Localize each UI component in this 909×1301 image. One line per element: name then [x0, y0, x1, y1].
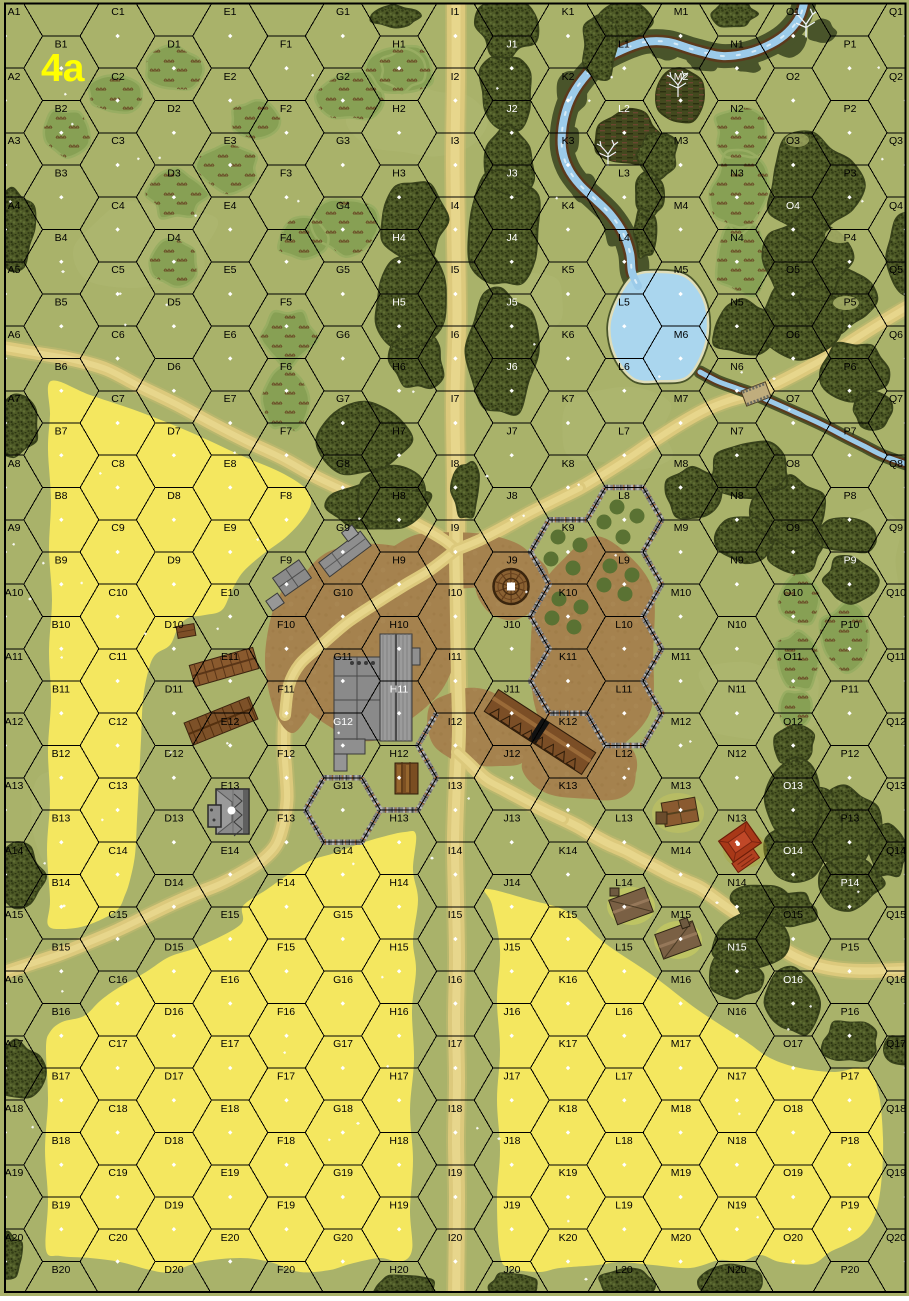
svg-text:Q10: Q10 [886, 587, 906, 599]
svg-text:I12: I12 [448, 716, 463, 728]
svg-text:A10: A10 [5, 587, 24, 599]
svg-text:H4: H4 [392, 232, 406, 244]
svg-text:A3: A3 [8, 135, 21, 147]
svg-text:A16: A16 [5, 974, 24, 986]
svg-text:H12: H12 [389, 748, 408, 760]
svg-text:E7: E7 [224, 393, 237, 405]
svg-text:K20: K20 [559, 1232, 578, 1244]
svg-text:B9: B9 [55, 555, 68, 567]
svg-text:N9: N9 [730, 555, 744, 567]
svg-text:Q1: Q1 [889, 6, 903, 18]
svg-text:J16: J16 [504, 1006, 521, 1018]
svg-text:N19: N19 [727, 1200, 746, 1212]
svg-text:A7: A7 [8, 393, 21, 405]
svg-text:F13: F13 [277, 813, 295, 825]
svg-text:P8: P8 [844, 490, 857, 502]
svg-text:G19: G19 [333, 1167, 353, 1179]
svg-text:C15: C15 [108, 909, 127, 921]
svg-text:O7: O7 [786, 393, 800, 405]
svg-text:A12: A12 [5, 716, 24, 728]
svg-text:C7: C7 [111, 393, 125, 405]
svg-text:M3: M3 [674, 135, 689, 147]
svg-text:B17: B17 [52, 1071, 71, 1083]
svg-text:G13: G13 [333, 780, 353, 792]
svg-text:A2: A2 [8, 71, 21, 83]
svg-text:O8: O8 [786, 458, 800, 470]
svg-text:K15: K15 [559, 909, 578, 921]
svg-text:A20: A20 [5, 1232, 24, 1244]
svg-text:L8: L8 [618, 490, 630, 502]
svg-text:H17: H17 [389, 1071, 408, 1083]
svg-text:K2: K2 [562, 71, 575, 83]
svg-text:O11: O11 [783, 651, 802, 663]
svg-text:Q9: Q9 [889, 522, 903, 534]
svg-text:F14: F14 [277, 877, 295, 889]
svg-text:I20: I20 [448, 1232, 463, 1244]
svg-text:C14: C14 [108, 845, 127, 857]
svg-text:J15: J15 [504, 942, 521, 954]
svg-text:L15: L15 [615, 942, 633, 954]
svg-text:F15: F15 [277, 942, 295, 954]
svg-text:G8: G8 [336, 458, 350, 470]
svg-text:O17: O17 [783, 1038, 803, 1050]
svg-text:E17: E17 [221, 1038, 240, 1050]
svg-text:I17: I17 [448, 1038, 463, 1050]
svg-text:K18: K18 [559, 1103, 578, 1115]
svg-text:E5: E5 [224, 264, 237, 276]
svg-text:E10: E10 [221, 587, 240, 599]
svg-text:L6: L6 [618, 361, 630, 373]
svg-text:I15: I15 [448, 909, 463, 921]
svg-text:P20: P20 [841, 1264, 860, 1276]
svg-text:Q18: Q18 [886, 1103, 906, 1115]
svg-text:F8: F8 [280, 490, 292, 502]
svg-text:H10: H10 [389, 619, 408, 631]
svg-text:G12: G12 [333, 716, 353, 728]
svg-text:J10: J10 [504, 619, 521, 631]
svg-text:C4: C4 [111, 200, 125, 212]
svg-text:O2: O2 [786, 71, 800, 83]
svg-text:P16: P16 [841, 1006, 860, 1018]
svg-text:P4: P4 [844, 232, 857, 244]
svg-text:E15: E15 [221, 909, 240, 921]
svg-text:H14: H14 [389, 877, 408, 889]
svg-text:M16: M16 [671, 974, 692, 986]
svg-text:O14: O14 [783, 845, 803, 857]
svg-text:B10: B10 [52, 619, 71, 631]
svg-text:I13: I13 [448, 780, 463, 792]
svg-text:I18: I18 [448, 1103, 463, 1115]
svg-text:F17: F17 [277, 1071, 295, 1083]
svg-text:P2: P2 [844, 103, 857, 115]
svg-text:D13: D13 [164, 813, 183, 825]
svg-text:M4: M4 [674, 200, 689, 212]
svg-text:F10: F10 [277, 619, 295, 631]
svg-text:I7: I7 [451, 393, 460, 405]
svg-text:E16: E16 [221, 974, 240, 986]
svg-text:G14: G14 [333, 845, 353, 857]
svg-text:N16: N16 [727, 1006, 746, 1018]
svg-text:O15: O15 [783, 909, 803, 921]
svg-text:J2: J2 [506, 103, 517, 115]
svg-text:B7: B7 [55, 426, 68, 438]
svg-text:H1: H1 [392, 39, 406, 51]
svg-text:N2: N2 [730, 103, 744, 115]
svg-text:Q5: Q5 [889, 264, 903, 276]
svg-text:G4: G4 [336, 200, 350, 212]
svg-text:A5: A5 [8, 264, 21, 276]
svg-text:G7: G7 [336, 393, 350, 405]
svg-text:Q16: Q16 [886, 974, 906, 986]
svg-text:E19: E19 [221, 1167, 240, 1179]
svg-text:F7: F7 [280, 426, 292, 438]
svg-text:G11: G11 [333, 651, 352, 663]
svg-text:G16: G16 [333, 974, 353, 986]
svg-text:K13: K13 [559, 780, 578, 792]
svg-text:G18: G18 [333, 1103, 353, 1115]
svg-text:B3: B3 [55, 168, 68, 180]
svg-text:I16: I16 [448, 974, 463, 986]
svg-text:I5: I5 [451, 264, 460, 276]
svg-text:E8: E8 [224, 458, 237, 470]
svg-text:P3: P3 [844, 168, 857, 180]
svg-text:E14: E14 [221, 845, 240, 857]
svg-text:N11: N11 [728, 684, 747, 696]
svg-text:K8: K8 [562, 458, 575, 470]
svg-text:J17: J17 [504, 1071, 521, 1083]
svg-text:D3: D3 [167, 168, 181, 180]
svg-text:G17: G17 [333, 1038, 353, 1050]
svg-text:H19: H19 [389, 1200, 408, 1212]
svg-text:F2: F2 [280, 103, 292, 115]
svg-text:O4: O4 [786, 200, 800, 212]
svg-text:D9: D9 [167, 555, 181, 567]
svg-text:B4: B4 [55, 232, 68, 244]
svg-text:N13: N13 [727, 813, 746, 825]
svg-text:M17: M17 [671, 1038, 692, 1050]
svg-text:E6: E6 [224, 329, 237, 341]
svg-text:F1: F1 [280, 39, 292, 51]
svg-text:P15: P15 [841, 942, 860, 954]
svg-text:K10: K10 [559, 587, 578, 599]
svg-text:O12: O12 [783, 716, 803, 728]
svg-text:D19: D19 [164, 1200, 183, 1212]
svg-text:C20: C20 [108, 1232, 127, 1244]
svg-text:G6: G6 [336, 329, 350, 341]
svg-text:E12: E12 [221, 716, 240, 728]
svg-text:L4: L4 [618, 232, 630, 244]
svg-text:N1: N1 [730, 39, 744, 51]
svg-text:N18: N18 [727, 1135, 746, 1147]
svg-text:K6: K6 [562, 329, 575, 341]
svg-text:N17: N17 [727, 1071, 746, 1083]
svg-text:C18: C18 [108, 1103, 127, 1115]
svg-text:P14: P14 [841, 877, 860, 889]
svg-text:L18: L18 [615, 1135, 633, 1147]
svg-text:G3: G3 [336, 135, 350, 147]
svg-text:P13: P13 [841, 813, 860, 825]
svg-text:D14: D14 [164, 877, 183, 889]
svg-text:F3: F3 [280, 168, 292, 180]
svg-text:H15: H15 [389, 942, 408, 954]
svg-text:K3: K3 [562, 135, 575, 147]
svg-text:L19: L19 [615, 1200, 633, 1212]
svg-text:A9: A9 [8, 522, 21, 534]
svg-text:N14: N14 [727, 877, 746, 889]
svg-text:J11: J11 [504, 684, 520, 696]
svg-text:K7: K7 [562, 393, 575, 405]
svg-text:E20: E20 [221, 1232, 240, 1244]
svg-text:E11: E11 [221, 651, 239, 663]
svg-text:C8: C8 [111, 458, 125, 470]
svg-text:Q19: Q19 [886, 1167, 906, 1179]
svg-text:K5: K5 [562, 264, 575, 276]
svg-text:C17: C17 [108, 1038, 127, 1050]
svg-text:G9: G9 [336, 522, 350, 534]
svg-text:M20: M20 [671, 1232, 692, 1244]
svg-text:C3: C3 [111, 135, 125, 147]
svg-text:I3: I3 [451, 135, 460, 147]
svg-text:J12: J12 [504, 748, 521, 760]
svg-text:P18: P18 [841, 1135, 860, 1147]
svg-text:L9: L9 [618, 555, 630, 567]
svg-text:Q7: Q7 [889, 393, 903, 405]
svg-text:I11: I11 [448, 651, 462, 663]
svg-text:J20: J20 [504, 1264, 521, 1276]
svg-text:C10: C10 [108, 587, 127, 599]
svg-text:F12: F12 [277, 748, 295, 760]
svg-text:L16: L16 [615, 1006, 633, 1018]
svg-text:M12: M12 [671, 716, 692, 728]
svg-text:D2: D2 [167, 103, 181, 115]
svg-text:O9: O9 [786, 522, 800, 534]
svg-text:F6: F6 [280, 361, 292, 373]
svg-text:A11: A11 [5, 651, 23, 663]
svg-text:A13: A13 [5, 780, 24, 792]
svg-text:E9: E9 [224, 522, 237, 534]
svg-text:K17: K17 [559, 1038, 578, 1050]
svg-text:F20: F20 [277, 1264, 295, 1276]
svg-text:N10: N10 [727, 619, 746, 631]
svg-text:D7: D7 [167, 426, 181, 438]
svg-text:H9: H9 [392, 555, 406, 567]
svg-text:A19: A19 [5, 1167, 24, 1179]
svg-text:O13: O13 [783, 780, 803, 792]
svg-text:H18: H18 [389, 1135, 408, 1147]
svg-text:H5: H5 [392, 297, 406, 309]
svg-text:C13: C13 [108, 780, 127, 792]
svg-text:J4: J4 [506, 232, 517, 244]
svg-text:P7: P7 [844, 426, 857, 438]
svg-text:C5: C5 [111, 264, 125, 276]
svg-text:L20: L20 [615, 1264, 633, 1276]
svg-text:O19: O19 [783, 1167, 803, 1179]
svg-text:K11: K11 [559, 651, 577, 663]
svg-text:L2: L2 [618, 103, 630, 115]
svg-text:E2: E2 [224, 71, 237, 83]
svg-text:G10: G10 [333, 587, 353, 599]
svg-text:I14: I14 [448, 845, 463, 857]
svg-text:L12: L12 [615, 748, 633, 760]
svg-text:I8: I8 [451, 458, 460, 470]
svg-text:A18: A18 [5, 1103, 24, 1115]
svg-text:D16: D16 [164, 1006, 183, 1018]
svg-text:Q8: Q8 [889, 458, 903, 470]
svg-text:J18: J18 [504, 1135, 521, 1147]
svg-text:D5: D5 [167, 297, 181, 309]
svg-text:L7: L7 [618, 426, 630, 438]
svg-text:O16: O16 [783, 974, 803, 986]
svg-text:P1: P1 [844, 39, 857, 51]
svg-text:G2: G2 [336, 71, 350, 83]
svg-text:B11: B11 [52, 684, 70, 696]
svg-text:C19: C19 [108, 1167, 127, 1179]
svg-text:K12: K12 [559, 716, 578, 728]
svg-text:N12: N12 [727, 748, 746, 760]
svg-text:E3: E3 [224, 135, 237, 147]
svg-text:Q13: Q13 [886, 780, 906, 792]
svg-text:E1: E1 [224, 6, 237, 18]
svg-text:O10: O10 [783, 587, 803, 599]
svg-text:A14: A14 [5, 845, 24, 857]
svg-text:C11: C11 [109, 651, 128, 663]
svg-text:B13: B13 [52, 813, 71, 825]
svg-text:H8: H8 [392, 490, 406, 502]
svg-text:E18: E18 [221, 1103, 240, 1115]
svg-text:D1: D1 [167, 39, 181, 51]
svg-text:M10: M10 [671, 587, 692, 599]
svg-text:Q12: Q12 [886, 716, 906, 728]
svg-text:I19: I19 [448, 1167, 463, 1179]
svg-text:C2: C2 [111, 71, 125, 83]
svg-text:G15: G15 [333, 909, 353, 921]
svg-text:P10: P10 [841, 619, 860, 631]
svg-text:K14: K14 [559, 845, 578, 857]
svg-text:C16: C16 [108, 974, 127, 986]
svg-text:Q11: Q11 [886, 651, 905, 663]
svg-text:O20: O20 [783, 1232, 803, 1244]
svg-text:D12: D12 [164, 748, 183, 760]
svg-text:N4: N4 [730, 232, 744, 244]
svg-text:B2: B2 [55, 103, 68, 115]
svg-text:J13: J13 [504, 813, 521, 825]
svg-text:P11: P11 [841, 684, 859, 696]
svg-text:L11: L11 [616, 684, 633, 696]
svg-text:P9: P9 [844, 555, 857, 567]
svg-text:O6: O6 [786, 329, 800, 341]
svg-text:A6: A6 [8, 329, 21, 341]
svg-text:D17: D17 [164, 1071, 183, 1083]
svg-text:H6: H6 [392, 361, 406, 373]
svg-text:F11: F11 [277, 684, 294, 696]
svg-text:C1: C1 [111, 6, 125, 18]
svg-text:P17: P17 [841, 1071, 860, 1083]
svg-text:F18: F18 [277, 1135, 295, 1147]
svg-text:D6: D6 [167, 361, 181, 373]
svg-text:F5: F5 [280, 297, 292, 309]
svg-text:K16: K16 [559, 974, 578, 986]
svg-text:P5: P5 [844, 297, 857, 309]
svg-text:G20: G20 [333, 1232, 353, 1244]
svg-text:B18: B18 [52, 1135, 71, 1147]
svg-text:B12: B12 [52, 748, 71, 760]
svg-text:B6: B6 [55, 361, 68, 373]
svg-text:M14: M14 [671, 845, 692, 857]
svg-text:I6: I6 [451, 329, 460, 341]
svg-text:F9: F9 [280, 555, 292, 567]
svg-text:P6: P6 [844, 361, 857, 373]
svg-text:N15: N15 [727, 942, 746, 954]
svg-text:O5: O5 [786, 264, 800, 276]
svg-text:M6: M6 [674, 329, 689, 341]
svg-text:B8: B8 [55, 490, 68, 502]
svg-text:D18: D18 [164, 1135, 183, 1147]
svg-text:A8: A8 [8, 458, 21, 470]
svg-text:Q4: Q4 [889, 200, 903, 212]
svg-text:D8: D8 [167, 490, 181, 502]
svg-text:E13: E13 [221, 780, 240, 792]
svg-text:H20: H20 [389, 1264, 408, 1276]
svg-text:Q17: Q17 [886, 1038, 906, 1050]
svg-text:L13: L13 [615, 813, 633, 825]
svg-text:D15: D15 [164, 942, 183, 954]
svg-text:I4: I4 [451, 200, 460, 212]
svg-text:A15: A15 [5, 909, 24, 921]
svg-text:B19: B19 [52, 1200, 71, 1212]
svg-text:I2: I2 [451, 71, 460, 83]
svg-text:C12: C12 [108, 716, 127, 728]
svg-text:D20: D20 [164, 1264, 183, 1276]
svg-text:M13: M13 [671, 780, 692, 792]
svg-text:D4: D4 [167, 232, 181, 244]
svg-text:D11: D11 [165, 684, 184, 696]
svg-text:N20: N20 [727, 1264, 746, 1276]
svg-text:4a: 4a [41, 47, 85, 90]
svg-text:L14: L14 [615, 877, 633, 889]
svg-text:M1: M1 [674, 6, 689, 18]
svg-text:A1: A1 [8, 6, 21, 18]
svg-text:F4: F4 [280, 232, 292, 244]
svg-text:M5: M5 [674, 264, 689, 276]
svg-text:H13: H13 [389, 813, 408, 825]
svg-text:M8: M8 [674, 458, 689, 470]
svg-text:Q15: Q15 [886, 909, 906, 921]
svg-text:H16: H16 [389, 1006, 408, 1018]
svg-text:O18: O18 [783, 1103, 803, 1115]
svg-text:L5: L5 [618, 297, 630, 309]
svg-text:M15: M15 [671, 909, 692, 921]
svg-text:M7: M7 [674, 393, 689, 405]
svg-text:N8: N8 [730, 490, 744, 502]
svg-text:L1: L1 [618, 39, 630, 51]
svg-text:B14: B14 [52, 877, 71, 889]
svg-text:B16: B16 [52, 1006, 71, 1018]
svg-text:H7: H7 [392, 426, 406, 438]
svg-text:H3: H3 [392, 168, 406, 180]
svg-text:J3: J3 [506, 168, 517, 180]
svg-text:I1: I1 [451, 6, 460, 18]
svg-text:A17: A17 [5, 1038, 24, 1050]
svg-text:C9: C9 [111, 522, 125, 534]
svg-text:M19: M19 [671, 1167, 692, 1179]
svg-text:Q20: Q20 [886, 1232, 906, 1244]
svg-text:B5: B5 [55, 297, 68, 309]
svg-text:K1: K1 [562, 6, 575, 18]
svg-text:I9: I9 [451, 522, 460, 534]
svg-text:J14: J14 [504, 877, 521, 889]
svg-text:Q14: Q14 [886, 845, 906, 857]
svg-text:M2: M2 [674, 71, 689, 83]
